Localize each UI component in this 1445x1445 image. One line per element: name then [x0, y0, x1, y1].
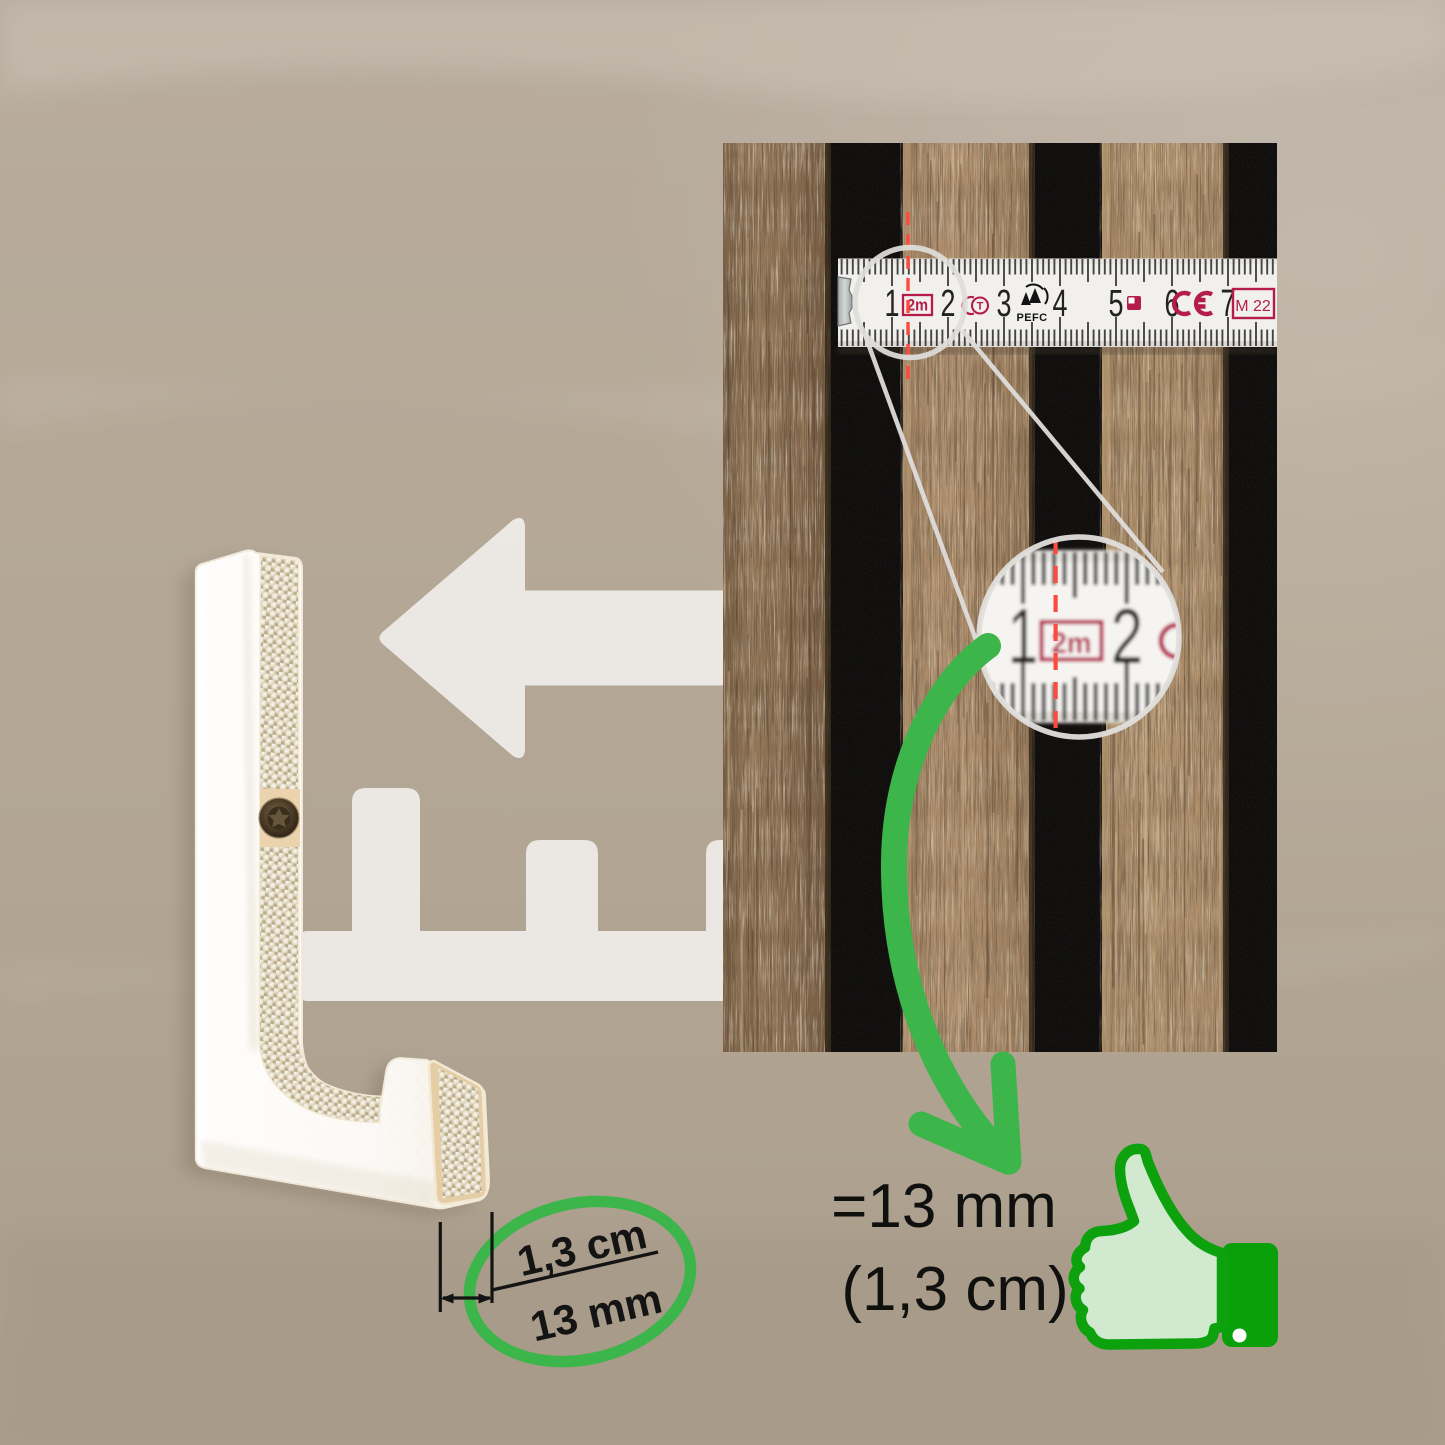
svg-text:PEFC: PEFC — [1017, 312, 1048, 324]
svg-text:M 22: M 22 — [1235, 298, 1271, 315]
svg-text:1: 1 — [885, 283, 900, 325]
svg-text:T: T — [977, 301, 984, 313]
svg-text:(1,3 cm): (1,3 cm) — [841, 1255, 1068, 1324]
svg-text:2: 2 — [941, 283, 956, 325]
svg-text:2: 2 — [1111, 592, 1143, 680]
svg-text:4: 4 — [1053, 283, 1068, 325]
svg-text:1: 1 — [1008, 592, 1038, 680]
svg-text:=13 mm: =13 mm — [831, 1172, 1057, 1241]
svg-text:5: 5 — [1109, 283, 1124, 325]
svg-text:3: 3 — [997, 283, 1012, 325]
svg-text:2m: 2m — [907, 297, 928, 315]
